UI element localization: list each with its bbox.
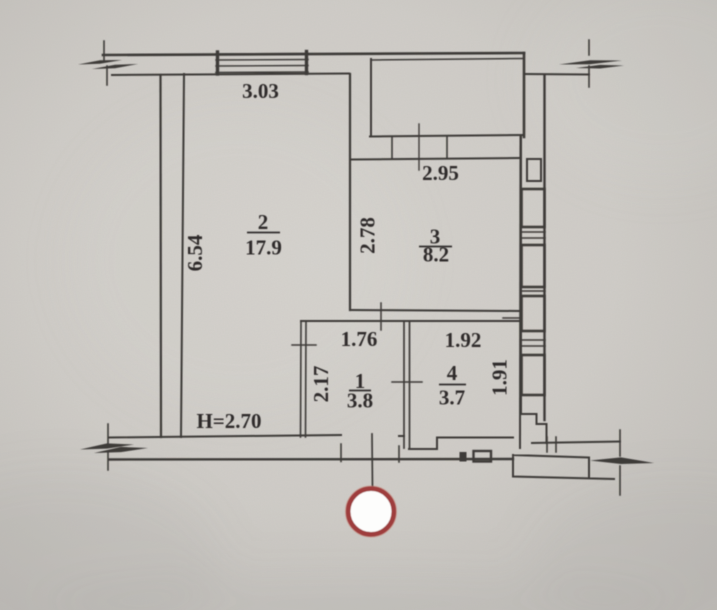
svg-text:17.9: 17.9 xyxy=(245,236,282,260)
svg-text:2: 2 xyxy=(258,210,269,234)
svg-text:2.95: 2.95 xyxy=(422,161,459,185)
svg-text:H=2.70: H=2.70 xyxy=(196,409,261,433)
svg-text:1.76: 1.76 xyxy=(341,327,378,351)
svg-text:4: 4 xyxy=(447,361,458,385)
svg-text:8.2: 8.2 xyxy=(423,243,449,267)
svg-text:3.7: 3.7 xyxy=(439,386,465,410)
svg-text:2.17: 2.17 xyxy=(309,366,333,403)
svg-text:2.78: 2.78 xyxy=(356,217,380,254)
svg-text:3.8: 3.8 xyxy=(347,389,373,413)
svg-text:1.91: 1.91 xyxy=(488,359,512,396)
svg-text:1.92: 1.92 xyxy=(445,328,482,352)
svg-text:3.03: 3.03 xyxy=(242,79,279,103)
svg-text:6.54: 6.54 xyxy=(183,234,207,271)
